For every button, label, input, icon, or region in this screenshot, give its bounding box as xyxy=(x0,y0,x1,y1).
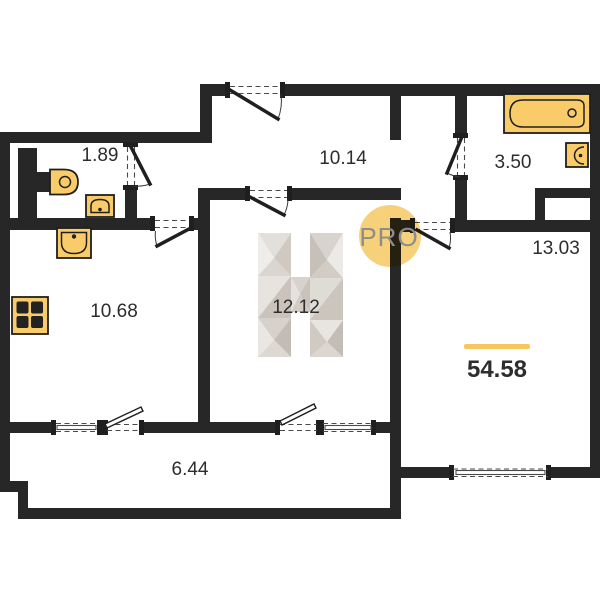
kitchen-door xyxy=(150,216,194,246)
bedroom-window xyxy=(316,420,376,435)
kitchen-area-label: 10.68 xyxy=(90,301,138,322)
shaft-left-wall xyxy=(535,188,545,232)
pro-badge-text: PRO xyxy=(359,222,418,252)
right-outer-wall xyxy=(590,84,600,478)
bottom-wall-5 xyxy=(373,422,401,433)
bottom-wall-3 xyxy=(143,422,278,433)
bathroom-area-label: 3.50 xyxy=(495,152,532,173)
total-area-accent-line xyxy=(464,344,530,349)
kitchen-balcony-door xyxy=(103,407,144,435)
bottom-wall-1 xyxy=(10,422,55,433)
windows xyxy=(51,420,551,480)
total-area-value: 54.58 xyxy=(467,356,527,383)
wc-door xyxy=(123,142,150,190)
living-top-wall-right xyxy=(452,220,600,232)
floor-plan: 1.89 10.14 3.50 13.03 10.68 12.12 6.44 5… xyxy=(0,0,600,600)
wc-right-wall-bottom xyxy=(125,186,137,230)
left-outer-wall xyxy=(0,132,10,492)
pro-watermark: PRO xyxy=(359,205,421,267)
balcony-area-label: 6.44 xyxy=(172,459,209,480)
bedroom-door xyxy=(245,186,292,215)
stove-icon xyxy=(12,297,48,334)
living-bottom-wall-right xyxy=(548,467,600,478)
wc-sink-icon xyxy=(86,195,114,217)
bathroom-left-wall-top xyxy=(455,96,467,137)
total-area-badge: 54.58 xyxy=(464,344,530,383)
kitchen-top-wall-right xyxy=(192,218,210,230)
living-window xyxy=(449,465,551,480)
entrance-door xyxy=(225,82,285,119)
kitchen-window xyxy=(51,420,105,435)
bedroom-balcony-door-leaf xyxy=(280,404,316,425)
bedroom-area-label: 12.12 xyxy=(272,297,320,318)
hallway-area-label: 10.14 xyxy=(319,148,367,169)
bedroom-top-wall-right xyxy=(290,188,401,200)
bedroom-balcony-door xyxy=(275,404,317,435)
wc-chase-wall xyxy=(18,148,37,221)
h-logo-watermark xyxy=(258,233,343,357)
hall-stub-wall xyxy=(390,96,401,140)
living-room-area-label: 13.03 xyxy=(532,238,580,259)
balcony-bottom-wall xyxy=(18,508,401,519)
toilet-icon xyxy=(37,170,78,195)
wc-top-wall xyxy=(0,132,212,143)
bathroom-sink-icon xyxy=(566,143,588,167)
bathtub-icon xyxy=(504,94,590,133)
kitchen-sink-icon xyxy=(57,228,91,258)
wc-area-label: 1.89 xyxy=(82,145,119,166)
bathroom-door xyxy=(447,133,468,180)
